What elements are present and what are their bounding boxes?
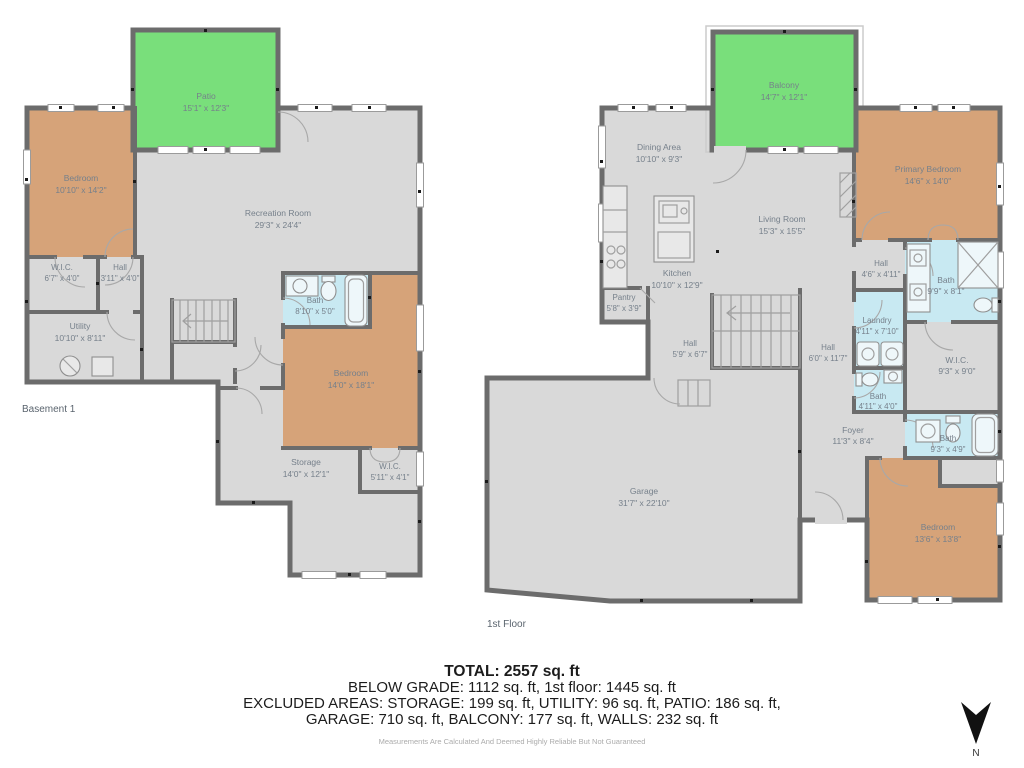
room-balcony: [713, 32, 856, 150]
room-label: W.I.C.: [945, 355, 968, 365]
room-label: Balcony: [769, 80, 800, 90]
room-dims: 4'11" x 4'0": [859, 402, 898, 411]
room-dims: 9'3" x 9'0": [938, 366, 975, 376]
room-dims: 9'3" x 4'9": [931, 445, 966, 454]
below-grade-line: BELOW GRADE: 1112 sq. ft, 1st floor: 144…: [0, 680, 1024, 696]
room-dims: 14'0" x 12'1": [283, 469, 330, 479]
room-dims: 14'6" x 14'0": [905, 176, 952, 186]
room-label: Bath: [937, 275, 955, 285]
room-label: Laundry: [863, 316, 892, 325]
measurements-disclaimer: Measurements Are Calculated And Deemed H…: [0, 737, 1024, 746]
room-dims: 5'11" x 4'1": [371, 473, 410, 482]
room-dims: 15'3" x 15'5": [759, 226, 806, 236]
basement-floor-label: Basement 1: [22, 404, 76, 415]
room-dims: 10'10" x 14'2": [55, 185, 106, 195]
room-label: Bedroom: [334, 368, 369, 378]
room-label: Bedroom: [64, 173, 99, 183]
room-label: Hall: [683, 339, 697, 348]
room-dims: 5'8" x 3'9": [607, 304, 642, 313]
room-label: Bath: [870, 392, 886, 401]
room-label: Primary Bedroom: [895, 164, 961, 174]
room-label: Hall: [821, 343, 835, 352]
room-label: Living Room: [758, 214, 805, 224]
room-label: Hall: [113, 263, 127, 272]
room-patio: [133, 30, 278, 150]
room-dims: 6'7" x 4'0": [45, 274, 80, 283]
room-label: Patio: [196, 91, 216, 101]
room-dims: 29'3" x 24'4": [255, 220, 302, 230]
floorplans-canvas: Patio 15'1" x 12'3" Bedroom 10'10" x 14'…: [0, 0, 1024, 768]
room-label: Garage: [630, 486, 659, 496]
room-dims: 14'0" x 18'1": [328, 380, 375, 390]
room-dims: 6'0" x 11'7": [809, 354, 848, 363]
north-label: N: [972, 748, 979, 758]
room-dims: 13'6" x 13'8": [915, 534, 962, 544]
room-dims: 8'10" x 5'0": [295, 307, 335, 316]
room-label: Foyer: [842, 425, 864, 435]
north-arrow: [961, 702, 991, 744]
room-label: Dining Area: [637, 142, 681, 152]
north-arrow-icon: N: [953, 700, 999, 758]
basement-plan: Patio 15'1" x 12'3" Bedroom 10'10" x 14'…: [22, 29, 424, 579]
excluded-areas-line: EXCLUDED AREAS: STORAGE: 199 sq. ft, UTI…: [0, 696, 1024, 712]
room-dims: 4'6" x 4'11": [862, 270, 901, 279]
front-door-gap: [815, 516, 847, 524]
room-dims: 5'9" x 6'7": [673, 350, 708, 359]
garage-balcony-walls-line: GARAGE: 710 sq. ft, BALCONY: 177 sq. ft,…: [0, 712, 1024, 728]
floorplan-page: Patio 15'1" x 12'3" Bedroom 10'10" x 14'…: [0, 0, 1024, 768]
room-dims: 10'10" x 9'3": [636, 154, 683, 164]
room-label: Recreation Room: [245, 208, 311, 218]
balcony-door-gap: [714, 146, 746, 154]
room-label: Kitchen: [663, 268, 692, 278]
room-dims: 9'9" x 8'1": [927, 286, 964, 296]
total-area: TOTAL: 2557 sq. ft: [0, 664, 1024, 680]
room-dims: 10'10" x 8'11": [55, 333, 106, 343]
room-label: Utility: [70, 321, 92, 331]
room-dims: 15'1" x 12'3": [183, 103, 230, 113]
north-compass: N: [953, 700, 999, 758]
room-label: Storage: [291, 457, 321, 467]
room-dims: 14'7" x 12'1": [761, 92, 808, 102]
room-label: W.I.C.: [379, 462, 401, 471]
room-label: Bath: [307, 296, 323, 305]
first-floor-label: 1st Floor: [487, 619, 527, 630]
room-label: Bath: [940, 434, 956, 443]
room-label: W.I.C.: [51, 263, 73, 272]
area-summary: TOTAL: 2557 sq. ft BELOW GRADE: 1112 sq.…: [0, 664, 1024, 746]
room-dims: 3'11" x 4'0": [101, 274, 140, 283]
first-floor-plan: Balcony 14'7" x 12'1" Dining Area 10'10"…: [485, 26, 1004, 630]
bedroom-closet: [940, 458, 1000, 486]
room-label: Bedroom: [921, 522, 956, 532]
room-primary-bedroom: [854, 108, 1000, 240]
room-dims: 4'11" x 7'10": [855, 327, 898, 336]
room-label: Hall: [874, 259, 888, 268]
room-dims: 11'3" x 8'4": [832, 436, 873, 446]
room-dims: 10'10" x 12'9": [651, 280, 702, 290]
room-dims: 31'7" x 22'10": [618, 498, 669, 508]
room-label: Pantry: [612, 293, 635, 302]
